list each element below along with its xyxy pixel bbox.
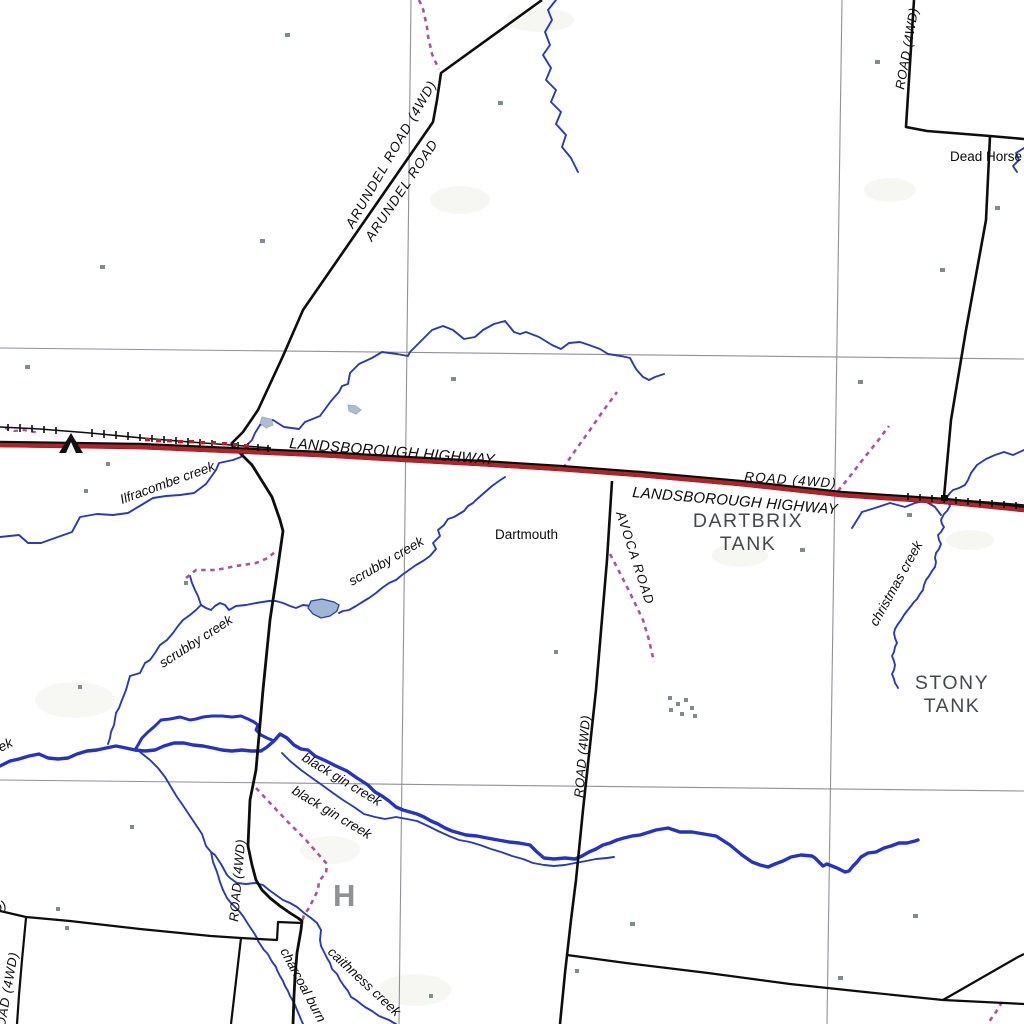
svg-text:STONY: STONY (915, 672, 989, 694)
svg-text:TANK: TANK (924, 695, 981, 717)
svg-text:TANK: TANK (720, 533, 777, 555)
svg-text:H: H (333, 878, 355, 913)
svg-text:Dead Horse: Dead Horse (950, 149, 1022, 164)
svg-text:DARTBRIX: DARTBRIX (693, 510, 803, 532)
svg-text:Dartmouth: Dartmouth (495, 527, 558, 542)
